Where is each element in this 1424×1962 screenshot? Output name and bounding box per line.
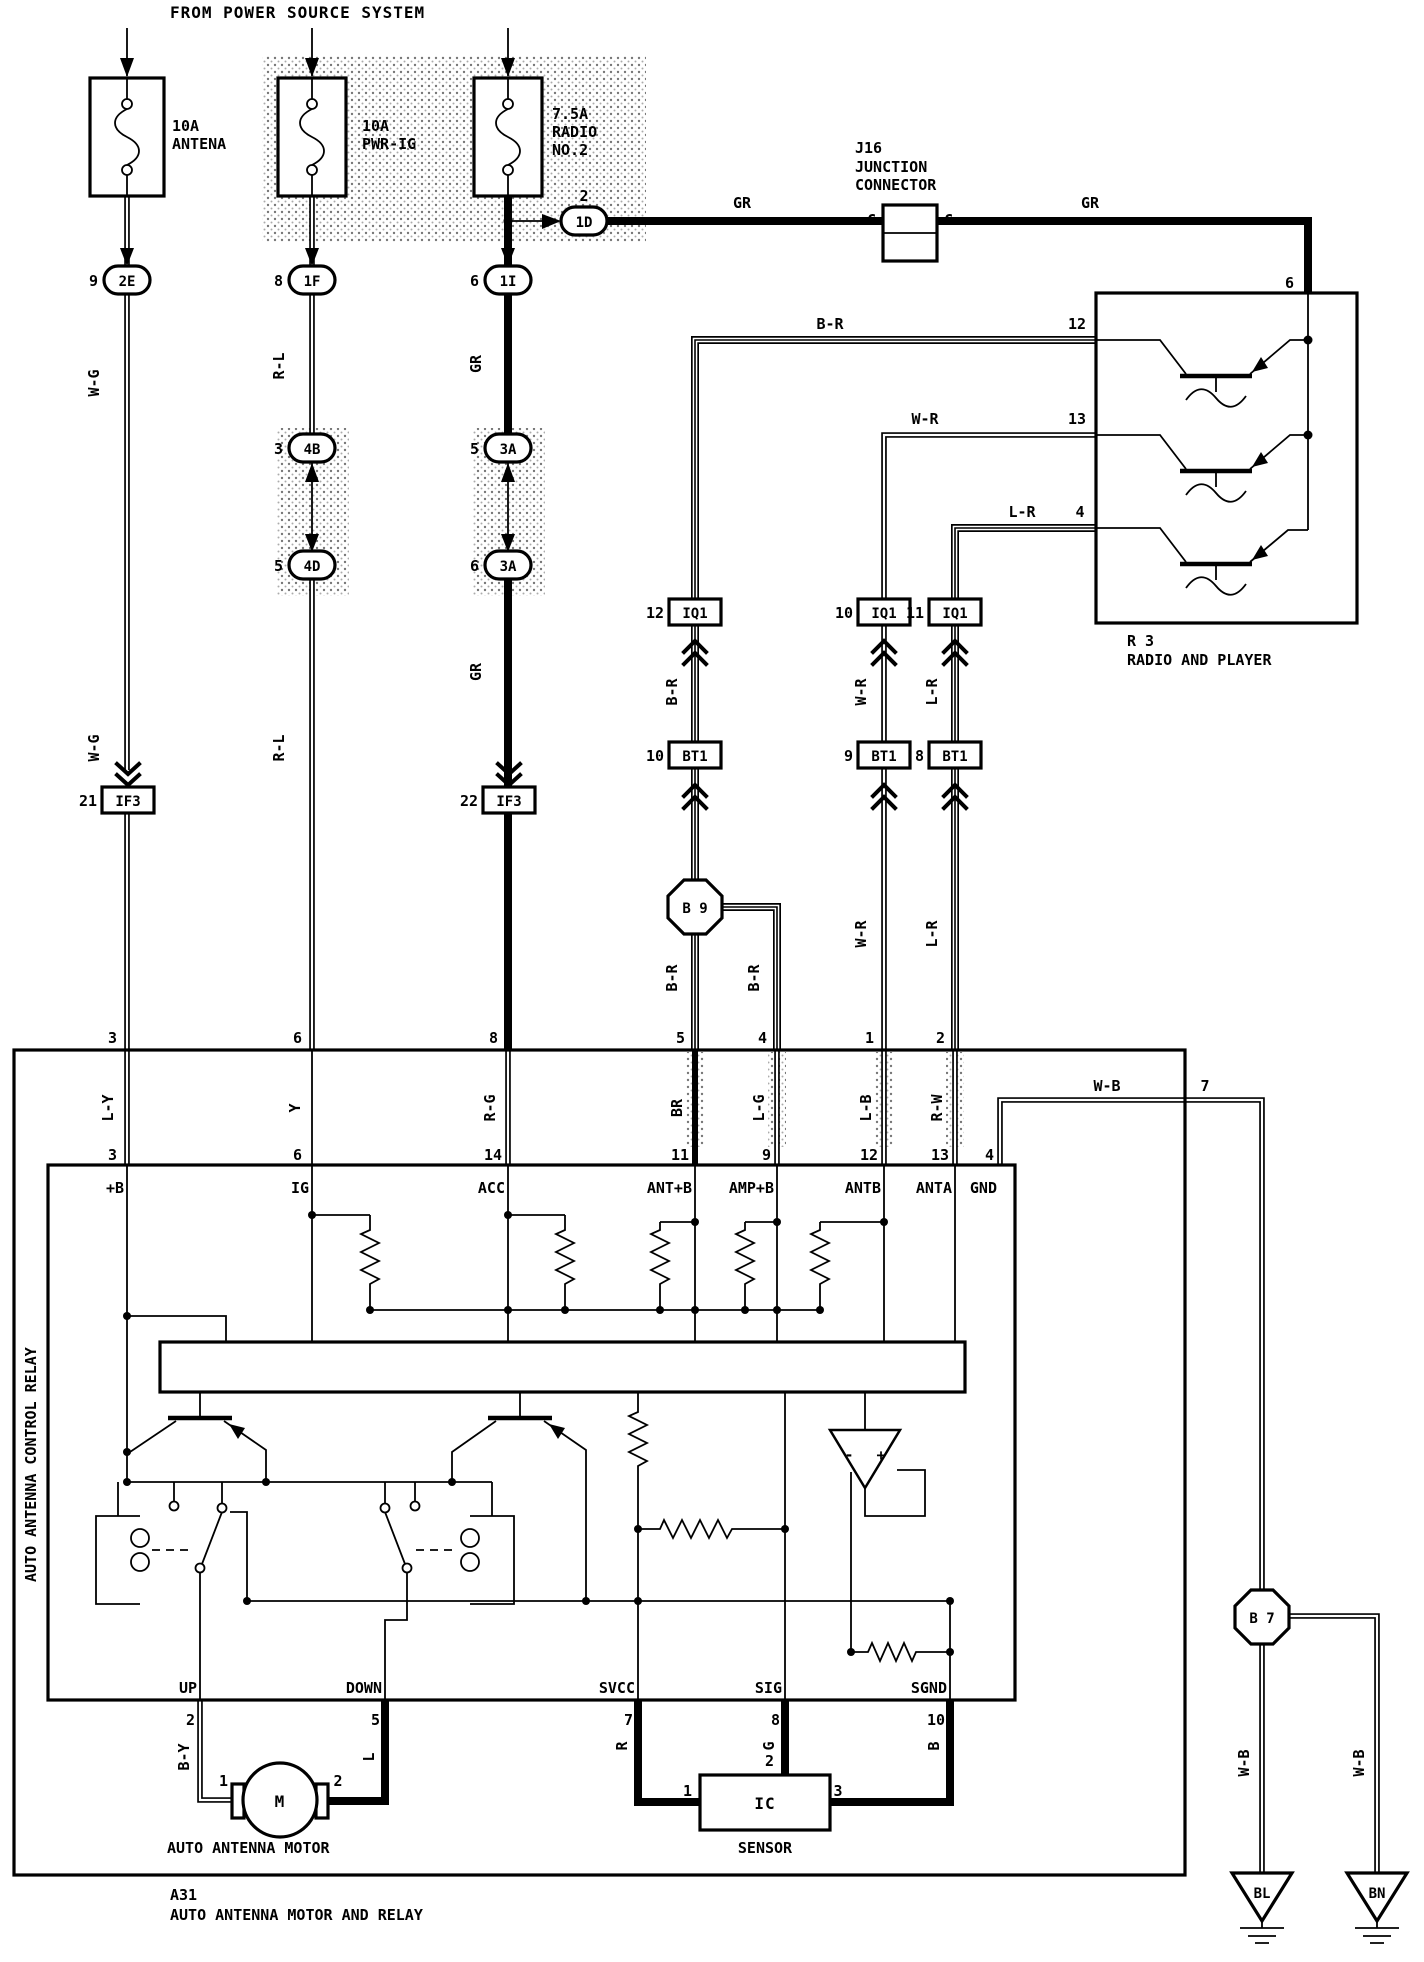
bt1-8-pin: 8 <box>915 747 924 765</box>
radio-id: R 3 <box>1127 632 1154 650</box>
ground-bn-label: BN <box>1369 1886 1386 1902</box>
wire-label-b-r: B-R <box>663 677 681 705</box>
oval-1f-id: 1F <box>304 274 321 290</box>
wire-label-up: UP <box>179 1679 197 1697</box>
oval-2e-pin: 9 <box>89 272 98 290</box>
wire-label-gr: GR <box>467 354 485 373</box>
wire-label-4: 4 <box>1075 503 1084 521</box>
fuse-pwrig-rating: 10A <box>362 117 389 135</box>
wire-label-amp-b: AMP+B <box>729 1179 774 1197</box>
wire-label-svcc: SVCC <box>599 1679 635 1697</box>
j16-type2: CONNECTOR <box>855 176 937 194</box>
wire-label-6: 6 <box>293 1146 302 1164</box>
wire-label-sgnd: SGND <box>911 1679 947 1697</box>
oval-1i-pin: 6 <box>470 272 479 290</box>
oval-4d-id: 4D <box>304 559 321 575</box>
wire-label-b-r: B-R <box>663 963 681 991</box>
iq1-11-id: IQ1 <box>942 606 967 622</box>
wire-label-ant-b: ANT+B <box>647 1179 692 1197</box>
wire-label-w-r: W-R <box>852 677 870 705</box>
control-ic-bar <box>160 1342 965 1392</box>
oval-4d-pin: 5 <box>274 557 283 575</box>
wire-label-12: 12 <box>860 1146 878 1164</box>
wire-label-5: 5 <box>676 1029 685 1047</box>
transistor-arrow <box>549 1424 565 1439</box>
relay-coil-loop <box>131 1529 149 1547</box>
transistor-arrow <box>229 1424 245 1439</box>
radio-box <box>1096 293 1357 623</box>
wire-label-sig: SIG <box>755 1679 782 1697</box>
a31-name: AUTO ANTENNA MOTOR AND RELAY <box>170 1906 423 1924</box>
bt1-9-pin: 9 <box>844 747 853 765</box>
wire-label-w-b: W-B <box>1235 1749 1253 1776</box>
relay-coil-loop <box>461 1529 479 1547</box>
bt1-10-id: BT1 <box>682 749 707 765</box>
iq1-12-id: IQ1 <box>682 606 707 622</box>
fuse-radio-label2: NO.2 <box>552 141 588 159</box>
grounds <box>1232 1873 1407 1943</box>
oval-3a-lower-id: 3A <box>500 559 517 575</box>
j16-c-right: C <box>944 211 953 229</box>
br-wire <box>695 340 1096 1050</box>
wire-label-7: 7 <box>1200 1077 1209 1095</box>
feed-arrow <box>120 58 134 77</box>
wire-label-1: 1 <box>219 1772 228 1790</box>
wiring-diagram: FROM POWER SOURCE SYSTEM 10A ANTENA 10A … <box>0 0 1424 1962</box>
wire-label-antb: ANTB <box>845 1179 881 1197</box>
wire-label-w-g: W-G <box>85 369 103 396</box>
wire-label-8: 8 <box>489 1029 498 1047</box>
wire-label-2: 2 <box>333 1772 342 1790</box>
bt1-10-pin: 10 <box>646 747 664 765</box>
wire-label-g: G <box>760 1741 778 1750</box>
iq1-11-pin: 11 <box>906 604 924 622</box>
oval-2e-id: 2E <box>119 274 136 290</box>
wire-label-6: 6 <box>1285 274 1294 292</box>
comparator <box>830 1430 900 1488</box>
wire-label--b: +B <box>106 1179 124 1197</box>
fuse-radio-label1: RADIO <box>552 123 597 141</box>
oval-1i-id: 1I <box>500 274 517 290</box>
radio-internals <box>1096 293 1308 595</box>
oval-1f-pin: 8 <box>274 272 283 290</box>
relay-coil-loop <box>461 1553 479 1571</box>
wire-label-w-r: W-R <box>852 919 870 947</box>
wire-label-11: 11 <box>671 1146 689 1164</box>
wire-label-r-g: R-G <box>481 1094 499 1121</box>
wire-label-w-b: W-B <box>1350 1749 1368 1776</box>
j16-id: J16 <box>855 139 882 157</box>
wire-label-13: 13 <box>931 1146 949 1164</box>
wire-label-l: L <box>360 1752 378 1761</box>
relay-box-name: AUTO ANTENNA CONTROL RELAY <box>22 1347 40 1582</box>
wire-label-w-g: W-G <box>85 734 103 761</box>
wire-label-down: DOWN <box>346 1679 382 1697</box>
wire-label-6: 6 <box>293 1029 302 1047</box>
wire-label-10: 10 <box>927 1711 945 1729</box>
wire-label-w-r: W-R <box>911 410 939 428</box>
wire-label-7: 7 <box>624 1711 633 1729</box>
wire-label-12: 12 <box>1068 315 1086 333</box>
wire-label-r-w: R-W <box>928 1093 946 1121</box>
wire-label-l-r: L-R <box>1008 503 1036 521</box>
wire-label-br: BR <box>668 1098 686 1117</box>
wire-label-l-b: L-B <box>857 1094 875 1121</box>
if3-22-pin: 22 <box>460 792 478 810</box>
wire-label-l-g: L-G <box>750 1094 768 1121</box>
wire-label-l-r: L-R <box>923 677 941 705</box>
wire-label--: - <box>844 1446 853 1464</box>
wire-label-2: 2 <box>765 1752 774 1770</box>
wire-label-3: 3 <box>833 1782 842 1800</box>
wire-label-gnd: GND <box>970 1179 997 1197</box>
j16-c-left: C <box>867 211 876 229</box>
sensor-name: SENSOR <box>738 1839 793 1857</box>
wire-label-9: 9 <box>762 1146 771 1164</box>
wire-label-r-l: R-L <box>270 352 288 379</box>
wire-label-l-y: L-Y <box>99 1094 117 1121</box>
wire-label-b-y: B-Y <box>175 1743 193 1770</box>
wire-label-ig: IG <box>291 1179 309 1197</box>
wire-label-y: Y <box>286 1103 304 1112</box>
wire-label-gr: GR <box>733 194 752 212</box>
wire-label-1: 1 <box>683 1782 692 1800</box>
oval-4b-pin: 3 <box>274 440 283 458</box>
wiring-diagram-page: FROM POWER SOURCE SYSTEM 10A ANTENA 10A … <box>0 0 1424 1962</box>
iq1-10-id: IQ1 <box>871 606 896 622</box>
wire-label-b-r: B-R <box>745 963 763 991</box>
oval-3a-lower-pin: 6 <box>470 557 479 575</box>
inner-top-wires <box>127 1050 955 1165</box>
j16-type1: JUNCTION <box>855 158 927 176</box>
oval-4b-id: 4B <box>304 442 321 458</box>
wire-label-acc: ACC <box>478 1179 505 1197</box>
bt1-8-id: BT1 <box>942 749 967 765</box>
wb-wire <box>1000 1100 1377 1873</box>
wire-label-w-b: W-B <box>1093 1077 1120 1095</box>
wire-label-r: R <box>613 1741 631 1751</box>
gr-wire-to-radio <box>606 221 1308 293</box>
iq1-12-pin: 12 <box>646 604 664 622</box>
b7-id: B 7 <box>1249 1611 1274 1627</box>
oval-1d-pin: 2 <box>579 187 588 205</box>
fuses <box>90 78 542 196</box>
wire-label-2: 2 <box>936 1029 945 1047</box>
wire-label-b-r: B-R <box>816 315 844 333</box>
wire-label-5: 5 <box>371 1711 380 1729</box>
wires <box>127 28 1377 1873</box>
b9-id: B 9 <box>682 901 707 917</box>
motor-sensor <box>232 1763 830 1837</box>
fuse-radio-rating: 7.5A <box>552 105 588 123</box>
if3-21-pin: 21 <box>79 792 97 810</box>
static-labels: FROM POWER SOURCE SYSTEM 10A ANTENA 10A … <box>22 3 1385 1924</box>
arrow-into-2e <box>120 248 134 266</box>
oval-3a-upper-pin: 5 <box>470 440 479 458</box>
boxes <box>14 293 1357 1875</box>
a31-id: A31 <box>170 1886 197 1904</box>
oval-3a-upper-id: 3A <box>500 442 517 458</box>
relay-internals <box>96 1165 965 1700</box>
motor-symbol-label: M <box>275 1792 286 1811</box>
fuse-antena-rating: 10A <box>172 117 199 135</box>
wire-label-r-l: R-L <box>270 734 288 761</box>
page-title: FROM POWER SOURCE SYSTEM <box>170 3 425 22</box>
wire-label-13: 13 <box>1068 410 1086 428</box>
wire-label-3: 3 <box>108 1146 117 1164</box>
ground-bl-label: BL <box>1254 1886 1271 1902</box>
arrow-into-1f <box>305 248 319 266</box>
transistor-arrow <box>1252 545 1268 560</box>
fuse-antena-label: ANTENA <box>172 135 226 153</box>
oval-1d-id: 1D <box>576 215 593 231</box>
ground-symbol <box>1240 1921 1284 1943</box>
wire-label-4: 4 <box>758 1029 767 1047</box>
wire-label-2: 2 <box>186 1711 195 1729</box>
arrow-into-1i <box>501 248 515 266</box>
wire-label-b: B <box>925 1741 943 1750</box>
transistor-arrow <box>1252 357 1268 372</box>
iq1-10-pin: 10 <box>835 604 853 622</box>
wire-label-3: 3 <box>108 1029 117 1047</box>
wire-label--: + <box>876 1446 885 1464</box>
motor-name: AUTO ANTENNA MOTOR <box>167 1839 331 1857</box>
wire-label-4: 4 <box>985 1146 994 1164</box>
wire-label-14: 14 <box>484 1146 502 1164</box>
transistor-arrow <box>1252 452 1268 467</box>
relay-coil-loop <box>131 1553 149 1571</box>
if3-21-id: IF3 <box>115 794 140 810</box>
if3-22-id: IF3 <box>496 794 521 810</box>
radio-name: RADIO AND PLAYER <box>1127 651 1272 669</box>
bt1-9-id: BT1 <box>871 749 896 765</box>
fuse-pwrig-label: PWR-IG <box>362 135 416 153</box>
wire-label-l-r: L-R <box>923 919 941 947</box>
wire-label-8: 8 <box>771 1711 780 1729</box>
wire-label-anta: ANTA <box>916 1179 952 1197</box>
sensor-ic-label: IC <box>754 1794 775 1813</box>
ground-symbol <box>1355 1921 1399 1943</box>
wire-label-gr: GR <box>1081 194 1100 212</box>
wire-label-1: 1 <box>865 1029 874 1047</box>
wire-label-gr: GR <box>467 662 485 681</box>
